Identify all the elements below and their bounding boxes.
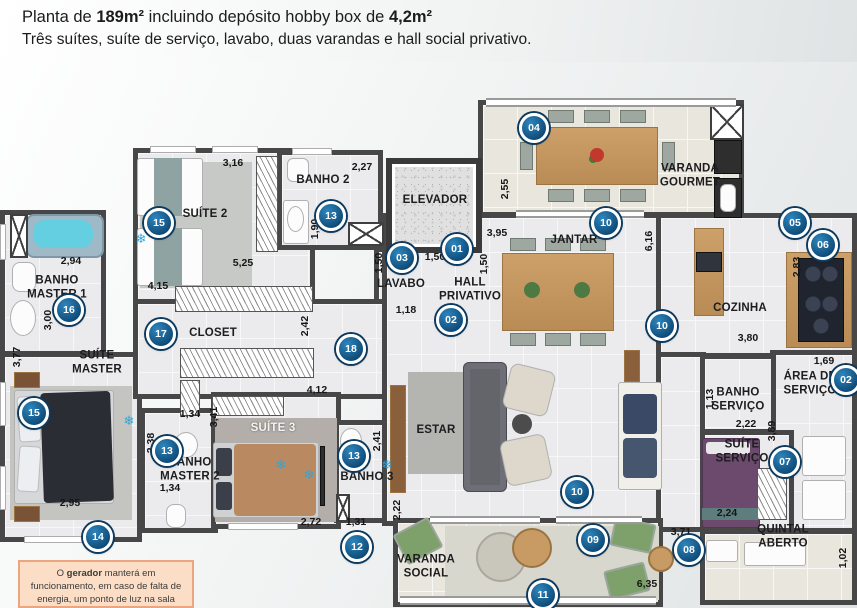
badge-10-varanda: 10	[562, 477, 592, 507]
badge-11: 11	[528, 580, 558, 608]
dim-banho-master2-w: 1,34	[160, 482, 180, 494]
window-suite-master-b	[0, 466, 6, 510]
badge-03: 03	[387, 243, 417, 273]
window-banho-master1	[0, 224, 6, 260]
generator-note: O gerador manterá em funcionamento, em c…	[18, 560, 194, 608]
tub-water	[33, 220, 93, 248]
badge-07: 07	[770, 447, 800, 477]
label-cozinha: COZINHA	[713, 301, 767, 315]
badge-13-banho3: 13	[339, 441, 369, 471]
dim-suite-servico-h: 3,89	[766, 421, 778, 441]
window-suite2-b	[212, 146, 258, 153]
badge-15-suite2: 15	[144, 208, 174, 238]
badge-14: 14	[83, 522, 113, 552]
badge-12: 12	[342, 532, 372, 562]
dim-suite-servico-w: 2,24	[717, 507, 737, 519]
shaft-banho2	[348, 222, 384, 246]
wardrobe-closet-bottom	[180, 348, 314, 378]
chair-gourmet-2	[584, 110, 610, 123]
plant-jantar-a	[524, 282, 540, 298]
badge-02-area-servico: 02	[831, 365, 857, 395]
badge-17: 17	[146, 319, 176, 349]
ac-icon-estar: ❄	[382, 457, 393, 473]
badge-13-banho-master2: 13	[152, 436, 182, 466]
shaft-cozinha	[710, 104, 744, 140]
badge-08: 08	[674, 535, 704, 565]
dim-suite-master-w: 2,95	[60, 497, 80, 509]
sliding-door-varanda-b	[556, 516, 642, 524]
chair-jantar-6	[580, 333, 606, 346]
dim-suite3-h: 3,41	[208, 407, 220, 427]
label-jantar: JANTAR	[551, 233, 598, 247]
armchair-estar-b	[499, 433, 554, 488]
label-hall-privativo: HALL PRIVATIVO	[439, 276, 501, 305]
badge-15-suite-master: 15	[19, 398, 49, 428]
wardrobe-closet-top	[175, 286, 313, 312]
label-closet: CLOSET	[189, 326, 237, 340]
chair-gourmet-5	[584, 189, 610, 202]
dim-banho2-top: 2,27	[352, 161, 372, 173]
wardrobe-suite2	[256, 156, 278, 252]
dim-cozinha-h: 2,83	[791, 257, 803, 277]
pillow-suite3-b	[216, 482, 232, 510]
note-text-c: manterá em funcionamento, em caso de fal…	[31, 568, 182, 605]
side-table-social	[648, 546, 674, 572]
dim-lavabo-w: 1,18	[396, 304, 416, 316]
dim-banho-servico-h: 1,13	[704, 389, 716, 409]
dim-varanda-social-w: 6,35	[637, 578, 657, 590]
dim-suite3-w: 2,72	[301, 516, 321, 528]
pillow-master-b	[16, 445, 41, 492]
toilet-banho-master2	[166, 504, 186, 528]
label-banho-servico: BANHO SERVIÇO	[712, 386, 765, 415]
plan-subtitle: Três suítes, suíte de serviço, lavabo, d…	[22, 31, 531, 49]
dim-cozinha-w: 3,80	[738, 332, 758, 344]
nightstand-master-b	[14, 506, 40, 522]
sliding-door-varanda-a	[430, 516, 540, 524]
chair-gourmet-3	[620, 110, 646, 123]
chair-jantar-4	[510, 333, 536, 346]
chair-gourmet-1	[548, 110, 574, 123]
washer-area-servico	[802, 436, 846, 476]
window-suite-master-c	[24, 536, 86, 543]
label-estar: ESTAR	[416, 423, 455, 437]
window-suite3	[228, 523, 298, 530]
plan-title: Planta de 189m² incluindo depósito hobby…	[22, 8, 432, 27]
table-jantar	[502, 253, 614, 331]
badge-06: 06	[808, 230, 838, 260]
window-suite-master-a	[0, 382, 6, 426]
chair-gourmet-4	[548, 189, 574, 202]
round-table-social-b	[512, 528, 552, 568]
dim-varanda-social-h: 2,22	[391, 500, 403, 520]
sofa-estar	[463, 362, 507, 492]
ac-icon-suite-master: ❄	[124, 413, 135, 429]
note-text-bold: gerador	[67, 568, 102, 579]
chair-jantar-1	[510, 238, 536, 251]
sink-banho-master1	[10, 300, 36, 336]
nightstand-master-a	[14, 372, 40, 388]
dim-banho-master2-top: 1,34	[180, 408, 200, 420]
title-text-mid: incluindo depósito hobby box de	[144, 8, 389, 26]
dim-banho-servico-w: 2,22	[736, 418, 756, 430]
label-suite-servico: SUÍTE SERVIÇO	[716, 438, 769, 467]
label-elevador: ELEVADOR	[403, 193, 468, 207]
badge-18: 18	[336, 334, 366, 364]
appliance-cozinha	[696, 252, 722, 272]
sink-banho2	[287, 206, 304, 232]
label-banho2: BANHO 2	[296, 173, 349, 187]
dim-suite2-top: 3,16	[223, 157, 243, 169]
ac-icon-suite2: ❄	[136, 231, 147, 247]
room-service-corridor	[656, 352, 706, 532]
title-area-hobby: 4,2m²	[389, 8, 432, 26]
badge-16: 16	[54, 295, 84, 325]
dim-banho-master1-h: 3,00	[42, 310, 54, 330]
side-table-estar	[512, 414, 532, 434]
dim-area-servico-w: 1,69	[814, 355, 834, 367]
sliding-door-jantar	[516, 210, 644, 218]
dim-lavabo-h: 1,50	[373, 253, 385, 273]
badge-05: 05	[780, 208, 810, 238]
label-varanda-social: VARANDA SOCIAL	[397, 553, 455, 582]
badge-02-hall: 02	[436, 305, 466, 335]
badge-09: 09	[578, 525, 608, 555]
dim-gourmet-h: 2,55	[499, 179, 511, 199]
note-text-a: O	[57, 568, 67, 579]
badge-01: 01	[442, 234, 472, 264]
railing-varanda-gourmet	[486, 98, 736, 107]
wardrobe-suite3	[212, 396, 284, 416]
dim-closet-top: 4,15	[148, 280, 168, 292]
tank-quintal-a	[706, 540, 738, 562]
dryer-area-servico	[802, 480, 846, 520]
label-suite3: SUÍTE 3	[251, 421, 296, 435]
title-text: Planta de	[22, 8, 96, 26]
flower-centerpiece	[590, 148, 604, 162]
ac-icon-suite3: ❄	[276, 457, 287, 473]
dim-closet-h: 2,42	[299, 316, 311, 336]
burners-cozinha	[804, 264, 838, 336]
dim-banho3-w: 1,31	[346, 516, 366, 528]
badge-04: 04	[519, 113, 549, 143]
dim-suite2-w: 5,25	[233, 257, 253, 269]
window-suite2-a	[150, 146, 196, 153]
floorplan-page: Planta de 189m² incluindo depósito hobby…	[0, 0, 857, 608]
cushion-daybed-b	[623, 438, 657, 478]
label-lavabo: LAVABO	[377, 277, 425, 291]
chair-jantar-5	[545, 333, 571, 346]
badge-13-banho2: 13	[316, 201, 346, 231]
shelf-estar	[624, 350, 640, 382]
label-varanda-gourmet: VARANDA GOURMET	[660, 162, 720, 191]
dim-quintal-h: 1,02	[837, 548, 849, 568]
badge-10-cozinha: 10	[647, 311, 677, 341]
dim-suite-master-h: 3,77	[11, 347, 23, 367]
plant-jantar-b	[574, 282, 590, 298]
title-area-total: 189m²	[96, 8, 144, 26]
dim-jantar-top: 3,95	[487, 227, 507, 239]
window-grid-banho-master1	[10, 214, 28, 258]
label-suite-master: SUÍTE MASTER	[72, 349, 122, 378]
dim-suite3-top: 4,12	[307, 384, 327, 396]
sink-gourmet	[720, 184, 736, 212]
dim-banho-master1-w: 2,94	[61, 255, 81, 267]
window-banho2	[292, 148, 332, 155]
cushion-daybed-a	[623, 394, 657, 434]
label-suite2: SUÍTE 2	[183, 207, 228, 221]
ac-icon-corridor: ❄	[304, 467, 315, 483]
dim-jantar-h: 6,16	[643, 231, 655, 251]
badge-10-jantar: 10	[591, 208, 621, 238]
label-quintal-aberto: QUINTAL ABERTO	[746, 523, 820, 552]
dim-hall-h: 1,50	[478, 254, 490, 274]
duvet-suite-master	[40, 391, 114, 503]
header-band: Planta de 189m² incluindo depósito hobby…	[0, 0, 857, 62]
chair-gourmet-6	[620, 189, 646, 202]
chair-gourmet-7	[520, 142, 533, 170]
label-area-servico: ÁREA DE SERVIÇO	[784, 370, 837, 399]
dim-banho3-h: 2,41	[371, 431, 383, 451]
tv-suite3	[320, 446, 325, 506]
